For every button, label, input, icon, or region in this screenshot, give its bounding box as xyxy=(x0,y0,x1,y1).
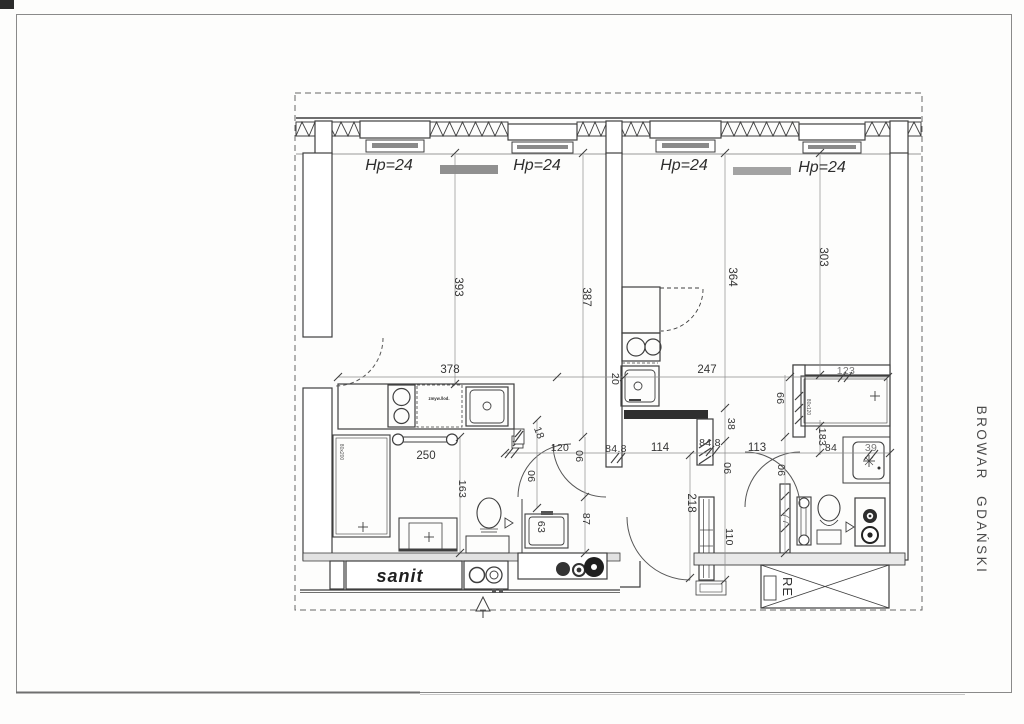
dim-114-label: 114 xyxy=(651,442,670,454)
bed-right xyxy=(801,376,890,426)
bed-right-size-label: 80x120 xyxy=(805,399,811,416)
window-glazing xyxy=(372,143,418,148)
dim-163-label: 163 xyxy=(456,480,468,498)
shaft xyxy=(699,497,714,580)
dim-63-label: 63 xyxy=(535,521,547,533)
dim-247-label: 247 xyxy=(697,364,716,376)
dim-20-label: 20 xyxy=(609,373,621,385)
entry-step xyxy=(620,561,640,587)
walls xyxy=(300,121,908,595)
toilet-right xyxy=(818,495,840,521)
dim-90a-label: 90 xyxy=(526,470,538,482)
scanned-floor-plan-sheet: Hp=24 Hp=24 Hp=24 Hp=24 393 387 364 303 … xyxy=(0,0,1024,724)
paper-holder xyxy=(505,518,513,528)
window-glazing xyxy=(808,145,856,149)
kitchen-unit-right xyxy=(621,287,703,406)
door-arc xyxy=(745,452,800,507)
parapet-label-1: Hp=24 xyxy=(365,157,413,174)
dim-250-label: 250 xyxy=(416,450,435,462)
stove-right xyxy=(622,333,660,361)
dim-18-label: 18 xyxy=(531,425,546,441)
wall-right xyxy=(890,153,908,560)
entrance-arrow xyxy=(476,597,490,611)
window-glazing xyxy=(517,145,568,149)
dim-39-label: 39 xyxy=(865,442,877,454)
cabinet-door-arc xyxy=(661,289,703,331)
tall-cabinet xyxy=(622,287,660,333)
dim-120-label: 120 xyxy=(551,442,569,454)
window-glazing xyxy=(662,143,709,148)
entry-door-arc xyxy=(627,517,690,580)
sanit-label: sanit xyxy=(376,566,423,586)
parapet-label-2: Hp=24 xyxy=(513,157,561,174)
dim-364-label: 364 xyxy=(726,267,738,287)
parapet-label-3: Hp=24 xyxy=(660,157,708,174)
dim-84-label: 84 xyxy=(825,442,837,454)
dim-218-label: 218 xyxy=(685,493,697,512)
dim-110-label: 110 xyxy=(723,528,735,546)
wall-party-a xyxy=(606,153,622,467)
wall-bottom-right xyxy=(694,553,905,565)
dim-90b-label: 90 xyxy=(574,450,586,462)
dim-387-label: 387 xyxy=(580,287,592,306)
sink-left xyxy=(466,387,508,426)
scan-corner-smudge xyxy=(0,0,14,9)
appliance-zone xyxy=(417,385,462,427)
door-arc xyxy=(745,452,800,507)
dim-87-label: 87 xyxy=(580,513,592,525)
project-name-vertical: BROWAR GDAŃSKI xyxy=(974,406,989,575)
floor-plan-drawing: Hp=24 Hp=24 Hp=24 Hp=24 393 387 364 303 … xyxy=(0,0,1024,724)
kitchen-appliance-label: zmyw./lod. xyxy=(428,396,449,401)
dim-848b-label: 84.8 xyxy=(699,437,721,449)
bathroom-left xyxy=(466,498,568,553)
dim-393-label: 393 xyxy=(452,277,464,296)
paper-holder xyxy=(846,522,854,532)
wall-left-lower xyxy=(303,388,332,560)
dim-38-label: 38 xyxy=(725,418,737,430)
redaction-bar xyxy=(733,167,791,175)
dim-123-label: 123 xyxy=(837,365,855,377)
bed-left-size-label: 80x200 xyxy=(338,444,344,461)
kitchen-unit-left xyxy=(338,384,514,445)
dim-99-label: 99 xyxy=(775,392,787,404)
cabinet-row-sanit xyxy=(330,553,607,618)
redaction-bar xyxy=(440,165,498,174)
re-label: RE xyxy=(780,577,795,597)
wall-left-upper xyxy=(303,153,332,337)
toilet-left xyxy=(477,498,501,528)
parapet-label-4: Hp=24 xyxy=(798,159,846,176)
wall-black-segment xyxy=(624,410,708,419)
dim-90c-label: 90 xyxy=(776,464,788,476)
balcony-door-arc xyxy=(335,338,383,386)
dim-77-label: 77 xyxy=(780,513,792,525)
dim-848a-label: 84.8 xyxy=(605,443,627,455)
dim-113-label: 113 xyxy=(748,442,766,454)
dim-378-label: 378 xyxy=(440,364,459,376)
dim-303-label: 303 xyxy=(817,247,829,266)
dim-90d-label: 90 xyxy=(722,462,734,474)
table-left xyxy=(399,518,457,551)
